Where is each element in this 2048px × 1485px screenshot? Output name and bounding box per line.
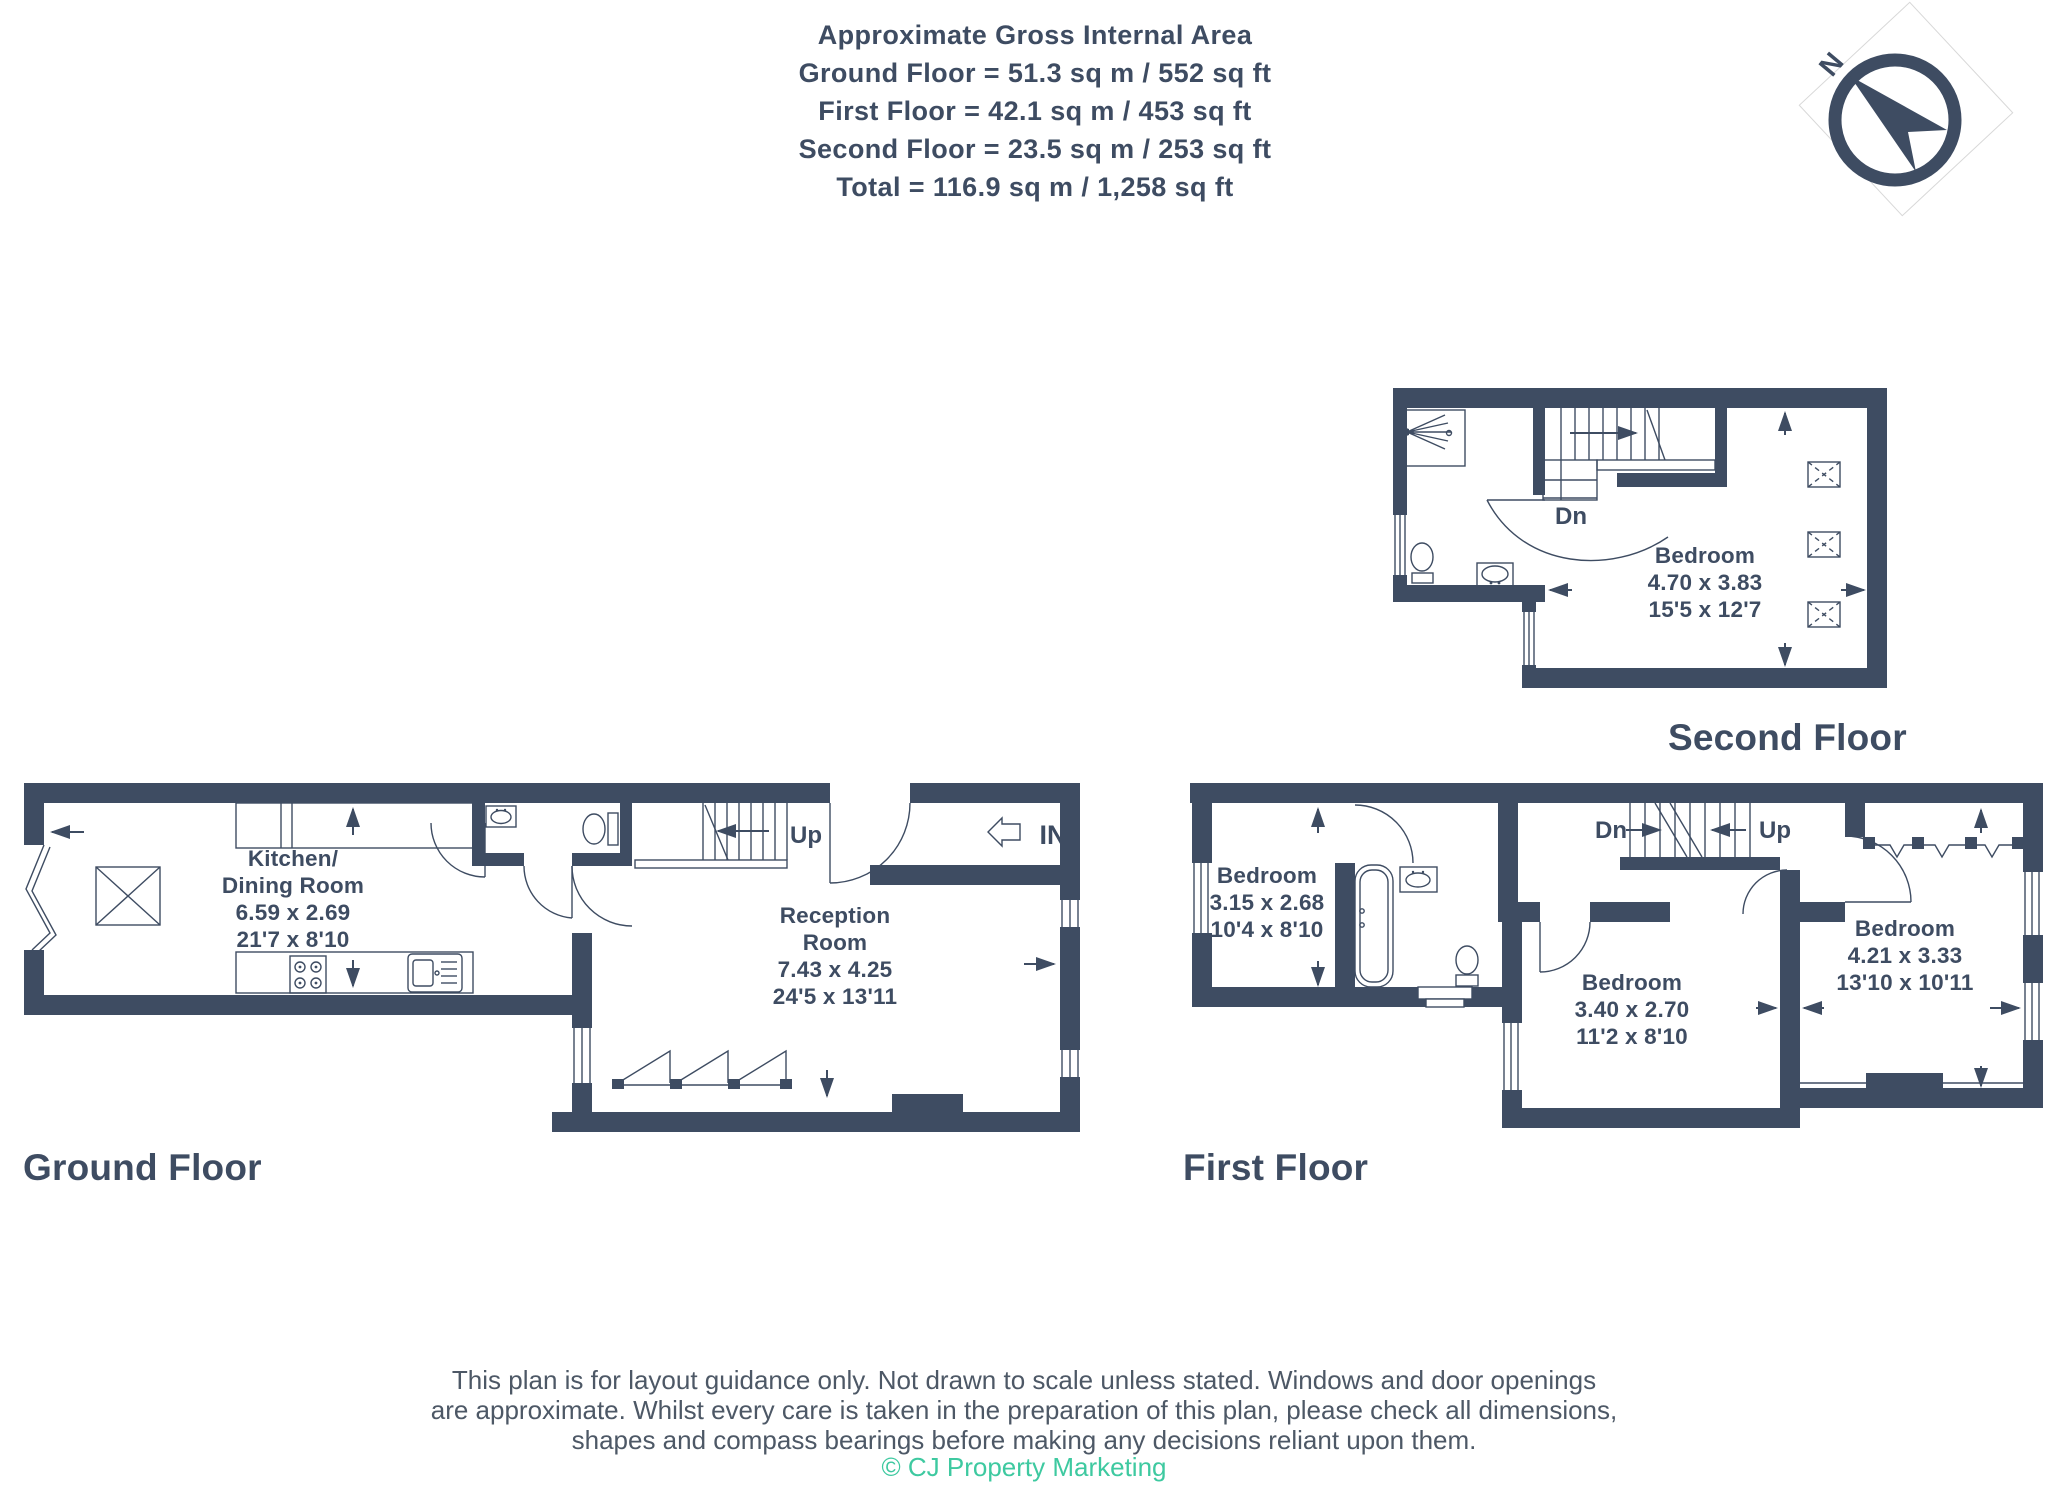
chimney-breast xyxy=(1866,1073,1943,1090)
ground-floor-title: Ground Floor xyxy=(23,1147,262,1189)
room-dimensions-metric: 3.40 x 2.70 xyxy=(1522,996,1742,1023)
kitchen-dining-room-label: Kitchen/ Dining Room 6.59 x 2.69 21'7 x … xyxy=(183,845,403,953)
area-summary: Approximate Gross Internal Area Ground F… xyxy=(535,16,1535,206)
compass-north-icon: N xyxy=(1795,0,2020,225)
room-dimensions-imperial: 10'4 x 8'10 xyxy=(1157,916,1377,943)
sink-icon xyxy=(408,954,462,992)
area-summary-title: Approximate Gross Internal Area xyxy=(535,16,1535,54)
toilet-icon xyxy=(1456,946,1478,986)
room-dimensions-imperial: 13'10 x 10'11 xyxy=(1795,969,2015,996)
first-floor-title: First Floor xyxy=(1183,1147,1368,1189)
bedroom-front-label: Bedroom 3.15 x 2.68 10'4 x 8'10 xyxy=(1157,862,1377,943)
bedroom-middle-label: Bedroom 3.40 x 2.70 11'2 x 8'10 xyxy=(1522,969,1742,1050)
stairs-down-label: Dn xyxy=(1541,503,1601,531)
room-dimensions-metric: 7.43 x 4.25 xyxy=(725,956,945,983)
chimney-breast xyxy=(892,1094,963,1112)
disclaimer: This plan is for layout guidance only. N… xyxy=(0,1365,2048,1455)
basin-icon xyxy=(486,806,516,827)
area-second-floor: Second Floor = 23.5 sq m / 253 sq ft xyxy=(535,130,1535,168)
reception-room-label: Reception Room 7.43 x 4.25 24'5 x 13'11 xyxy=(725,902,945,1010)
bulkhead xyxy=(1418,987,1472,1007)
toilet-icon xyxy=(583,813,618,845)
shower-icon xyxy=(1401,410,1465,466)
floorplan-page: Approximate Gross Internal Area Ground F… xyxy=(0,0,2048,1485)
room-dimensions-metric: 4.70 x 3.83 xyxy=(1595,569,1815,596)
room-dimensions-imperial: 21'7 x 8'10 xyxy=(183,926,403,953)
area-ground-floor: Ground Floor = 51.3 sq m / 552 sq ft xyxy=(535,54,1535,92)
bay-window xyxy=(26,845,56,952)
room-dimensions-imperial: 15'5 x 12'7 xyxy=(1595,596,1815,623)
room-dimensions-metric: 6.59 x 2.69 xyxy=(183,899,403,926)
basin-icon xyxy=(1477,563,1513,587)
copyright-line: © CJ Property Marketing xyxy=(0,1452,2048,1483)
room-dimensions-metric: 4.21 x 3.33 xyxy=(1795,942,2015,969)
room-dimensions-metric: 3.15 x 2.68 xyxy=(1157,889,1377,916)
stairs-up xyxy=(635,803,787,868)
compass-n-label: N xyxy=(1813,46,1850,81)
stairs-up-label: Up xyxy=(1745,817,1805,845)
room-dimensions-imperial: 24'5 x 13'11 xyxy=(725,983,945,1010)
room-dimensions-imperial: 11'2 x 8'10 xyxy=(1522,1023,1742,1050)
toilet-icon xyxy=(1411,543,1433,583)
rear-bay xyxy=(612,1051,792,1089)
rooflight-icon xyxy=(96,867,160,925)
area-first-floor: First Floor = 42.1 sq m / 453 sq ft xyxy=(535,92,1535,130)
compass: N xyxy=(1795,0,2020,225)
area-total: Total = 116.9 sq m / 1,258 sq ft xyxy=(535,168,1535,206)
basin-icon xyxy=(1400,867,1437,892)
bedroom-rear-label: Bedroom 4.21 x 3.33 13'10 x 10'11 xyxy=(1795,915,2015,996)
stairs xyxy=(1626,803,1750,857)
second-floor-title: Second Floor xyxy=(1668,717,1907,759)
bedroom-second-label: Bedroom 4.70 x 3.83 15'5 x 12'7 xyxy=(1595,542,1815,623)
entrance-arrow-icon xyxy=(988,818,1020,846)
entrance-in-label: IN xyxy=(1023,820,1083,851)
second-floor-plan xyxy=(1393,385,1903,695)
stairs-down-label: Dn xyxy=(1581,817,1641,845)
hob-icon xyxy=(290,956,326,993)
wardrobe xyxy=(1863,837,2023,857)
stairs-up-label: Up xyxy=(776,822,836,850)
